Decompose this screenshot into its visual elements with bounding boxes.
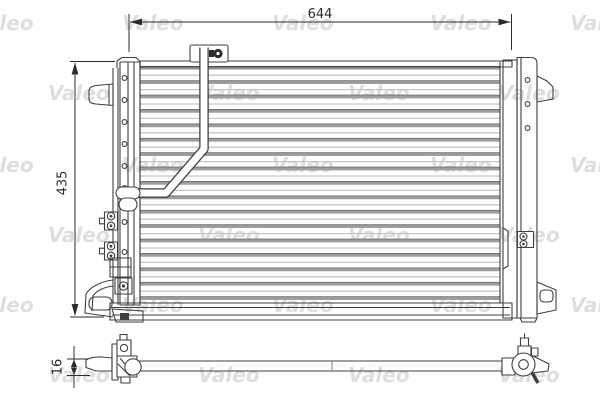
valeo-watermark: Valeo (0, 153, 34, 177)
valeo-watermark: Valeo (122, 11, 184, 35)
valeo-watermark: Valeo (570, 11, 600, 35)
pipe-elbow-fitting (116, 187, 140, 199)
depth-dimension-label: 16 (51, 359, 66, 376)
pipe-elbow-end (119, 198, 137, 211)
right-bottom-foot (520, 318, 537, 322)
valeo-watermark: Valeo (348, 81, 410, 105)
side-core-profile (138, 361, 504, 371)
valeo-watermark: Valeo (122, 153, 184, 177)
valeo-watermark: Valeo (198, 363, 260, 387)
valeo-watermark: Valeo (0, 11, 34, 35)
fitting-bolt (209, 49, 223, 58)
valeo-watermark: Valeo (430, 153, 492, 177)
valeo-watermark: Valeo (570, 293, 600, 317)
width-dimension-label: 644 (308, 7, 333, 22)
valeo-watermark: Valeo (570, 153, 600, 177)
right-service-fitting (518, 232, 534, 248)
right-lower-mounting-bracket (537, 282, 556, 314)
condenser-side-view (86, 334, 549, 384)
height-dimension-label: 435 (56, 171, 71, 196)
core-tubes (140, 66, 500, 298)
valeo-watermark: Valeo (48, 223, 110, 247)
left-lower-mounting-bracket (85, 280, 113, 317)
valeo-watermark: Valeo (272, 153, 334, 177)
valeo-watermark: Valeo (0, 293, 34, 317)
valeo-watermark: Valeo (430, 11, 492, 35)
condenser-front-view (85, 45, 556, 322)
technical-drawing-page: ValeoValeoValeoValeoValeoValeoValeoValeo… (0, 0, 600, 400)
valeo-watermark: Valeo (348, 363, 410, 387)
side-pipe-fitting-circle (512, 353, 535, 376)
condenser-drawing-svg: ValeoValeoValeoValeoValeoValeoValeoValeo… (0, 0, 600, 400)
